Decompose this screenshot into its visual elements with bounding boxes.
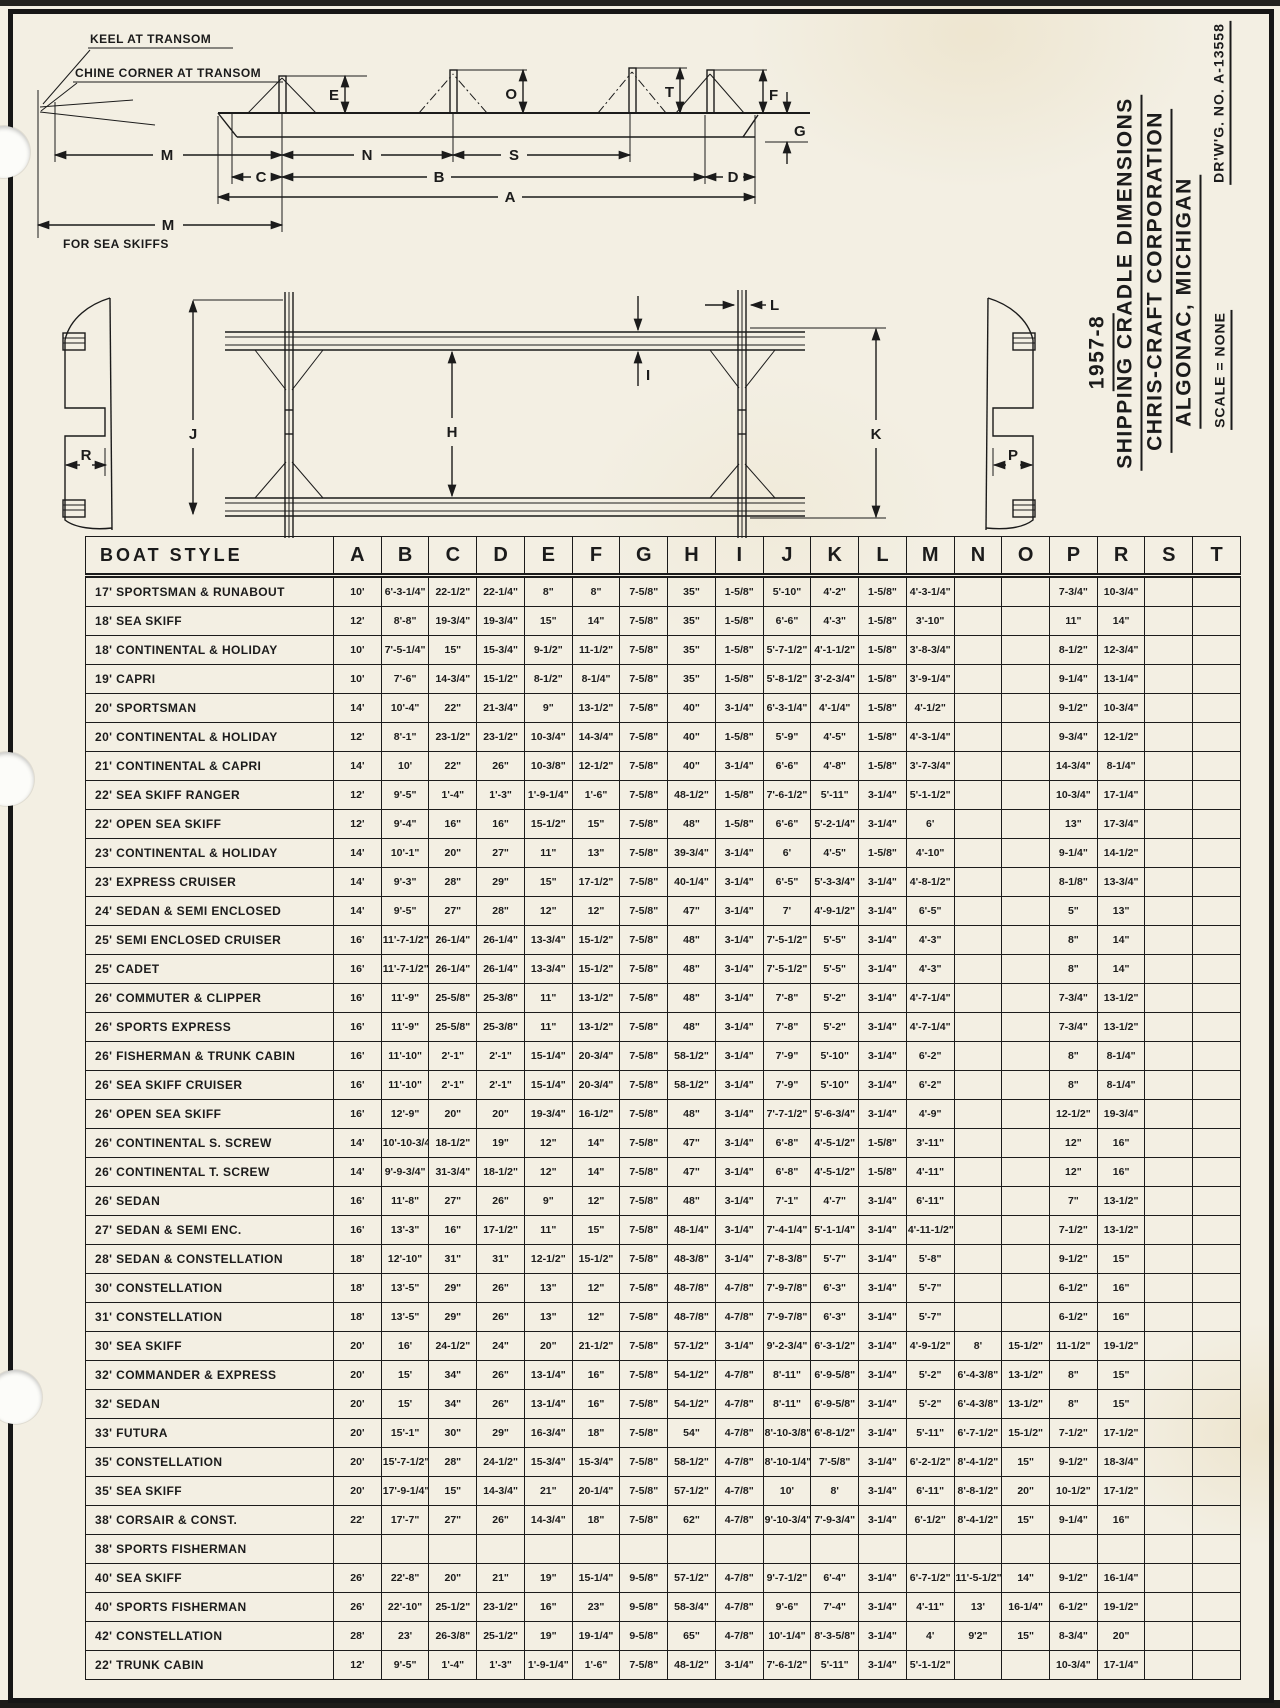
dimension-cell: 7-3/4" bbox=[1050, 576, 1098, 607]
dimension-cell: 5'-2-1/4" bbox=[811, 810, 859, 839]
dimension-cell: 6'-7-1/2" bbox=[954, 1419, 1002, 1448]
dimension-cell: 15-1/4" bbox=[572, 1564, 620, 1593]
dimension-cell: 10' bbox=[763, 1477, 811, 1506]
dimension-cell: 3-1/4" bbox=[715, 1013, 763, 1042]
dimension-cell bbox=[954, 665, 1002, 694]
dimension-cell: 3-1/4" bbox=[859, 1506, 907, 1535]
dimension-cell bbox=[1002, 1129, 1050, 1158]
table-row: 32' SEDAN20'15'34"26"13-1/4"16"7-5/8"54-… bbox=[86, 1390, 1241, 1419]
dimension-cell bbox=[1145, 1593, 1193, 1622]
dimension-cell bbox=[1193, 1216, 1241, 1245]
dimension-cell: 19" bbox=[524, 1622, 572, 1651]
boat-style-cell: 42' CONSTELLATION bbox=[86, 1622, 334, 1651]
dimension-cell: 5'-7" bbox=[811, 1245, 859, 1274]
dimension-cell: 23' bbox=[381, 1622, 429, 1651]
dimension-cell: 8" bbox=[1050, 955, 1098, 984]
dimension-cell: 8'-8-1/2" bbox=[954, 1477, 1002, 1506]
column-header-F: F bbox=[572, 537, 620, 576]
dimension-cell: 17-1/2" bbox=[1097, 1477, 1145, 1506]
dimension-cell: 3-1/4" bbox=[859, 1651, 907, 1680]
dimension-cell: 7-5/8" bbox=[620, 1100, 668, 1129]
dimension-cell: 31" bbox=[477, 1245, 525, 1274]
column-header-T: T bbox=[1193, 537, 1241, 576]
dimension-cell: 29" bbox=[429, 1274, 477, 1303]
dimension-cell: 9-1/2" bbox=[1050, 694, 1098, 723]
dimension-cell bbox=[1002, 1158, 1050, 1187]
dimension-cell: 7-5/8" bbox=[620, 1448, 668, 1477]
dimension-cell: 54" bbox=[668, 1419, 716, 1448]
boat-style-cell: 35' CONSTELLATION bbox=[86, 1448, 334, 1477]
dimension-cell: 9'-9-3/4" bbox=[381, 1158, 429, 1187]
dimension-cell: 48-3/8" bbox=[668, 1245, 716, 1274]
dimension-cell bbox=[1002, 1187, 1050, 1216]
dimension-cell: 13" bbox=[524, 1274, 572, 1303]
dimension-cell: 14" bbox=[1097, 607, 1145, 636]
dimension-cell: 10-3/8" bbox=[524, 752, 572, 781]
dimension-cell: 13' bbox=[954, 1593, 1002, 1622]
dimension-cell: 26-1/4" bbox=[429, 926, 477, 955]
cross-members bbox=[255, 290, 775, 538]
dim-label-I: I bbox=[646, 367, 650, 384]
dimension-cell bbox=[1002, 694, 1050, 723]
table-row: 31' CONSTELLATION18'13'-5"29"26"13"12"7-… bbox=[86, 1303, 1241, 1332]
dimension-cell: 3-1/4" bbox=[859, 1448, 907, 1477]
dimension-cell: 3-1/4" bbox=[715, 1216, 763, 1245]
dimension-cell: 14" bbox=[1002, 1564, 1050, 1593]
drawing-sheet: KEEL AT TRANSOM CHINE CORNER AT TRANSOM bbox=[0, 0, 1280, 1708]
dimension-cell: 16-1/2" bbox=[572, 1100, 620, 1129]
dimension-cell: 10'-1/4" bbox=[763, 1622, 811, 1651]
dimension-cell: 3-1/4" bbox=[859, 984, 907, 1013]
dimension-cell: 15-1/2" bbox=[1002, 1419, 1050, 1448]
dimension-cell: 3'-8-3/4" bbox=[906, 636, 954, 665]
boat-style-cell: 26' COMMUTER & CLIPPER bbox=[86, 984, 334, 1013]
dimension-cell: 15" bbox=[1097, 1361, 1145, 1390]
dimension-cell bbox=[954, 839, 1002, 868]
dimension-cell: 5'-3-3/4" bbox=[811, 868, 859, 897]
dimension-cell: 18' bbox=[334, 1274, 382, 1303]
dimension-cell: 57-1/2" bbox=[668, 1477, 716, 1506]
dimension-cell bbox=[1145, 1651, 1193, 1680]
dimension-cell bbox=[1145, 1158, 1193, 1187]
dimension-cell: 48" bbox=[668, 1100, 716, 1129]
dimension-cell: 20' bbox=[334, 1448, 382, 1477]
boat-style-cell: 33' FUTURA bbox=[86, 1419, 334, 1448]
dimension-cell: 3-1/4" bbox=[715, 868, 763, 897]
dimension-cell: 3-1/4" bbox=[859, 1564, 907, 1593]
dimension-cell: 13" bbox=[1097, 897, 1145, 926]
dimension-cell: 6'-6" bbox=[763, 752, 811, 781]
dimension-cell: 4-7/8" bbox=[715, 1390, 763, 1419]
dimension-cell: 6'-2-1/2" bbox=[906, 1448, 954, 1477]
dimension-cell bbox=[1193, 897, 1241, 926]
drawing-title: SHIPPING CRADLE DIMENSIONS bbox=[1114, 95, 1143, 471]
dimension-cell: 18-1/2" bbox=[429, 1129, 477, 1158]
dimension-cell: 7-5/8" bbox=[620, 984, 668, 1013]
dimension-cell bbox=[954, 694, 1002, 723]
dimension-cell: 15" bbox=[429, 636, 477, 665]
column-header-P: P bbox=[1050, 537, 1098, 576]
dimension-cell: 15-1/4" bbox=[524, 1071, 572, 1100]
dimension-cell: 6'-3-1/2" bbox=[811, 1332, 859, 1361]
dimension-cell: 4'-7" bbox=[811, 1187, 859, 1216]
dimension-cell: 13-1/4" bbox=[1097, 665, 1145, 694]
dimension-cell: 3-1/4" bbox=[859, 1042, 907, 1071]
dimension-cell: 5'-1-1/2" bbox=[906, 781, 954, 810]
dimension-cell: 29" bbox=[477, 868, 525, 897]
boat-style-cell: 18' SEA SKIFF bbox=[86, 607, 334, 636]
dimension-cell: 3-1/4" bbox=[715, 926, 763, 955]
dimension-cell: 16' bbox=[334, 926, 382, 955]
table-row: 25' SEMI ENCLOSED CRUISER16'11'-7-1/2"26… bbox=[86, 926, 1241, 955]
dimension-cell: 4-7/8" bbox=[715, 1506, 763, 1535]
dimension-cell bbox=[1193, 1100, 1241, 1129]
dimension-cell: 19-3/4" bbox=[1097, 1100, 1145, 1129]
boat-style-cell: 40' SEA SKIFF bbox=[86, 1564, 334, 1593]
column-header-R: R bbox=[1097, 537, 1145, 576]
dimension-cell: 48" bbox=[668, 1187, 716, 1216]
dimension-cell: 4-7/8" bbox=[715, 1448, 763, 1477]
table-row: 23' EXPRESS CRUISER14'9'-3"28"29"15"17-1… bbox=[86, 868, 1241, 897]
dimension-cell: 7-5/8" bbox=[620, 1158, 668, 1187]
dimension-cell: 29" bbox=[477, 1419, 525, 1448]
dimension-cell: 22" bbox=[429, 752, 477, 781]
dimension-cell: 14" bbox=[572, 607, 620, 636]
dimension-cell: 9'-5" bbox=[381, 781, 429, 810]
dimension-cell bbox=[1145, 694, 1193, 723]
dimension-cell bbox=[1193, 694, 1241, 723]
dimension-cell bbox=[1193, 1042, 1241, 1071]
boat-style-cell: 26' SEA SKIFF CRUISER bbox=[86, 1071, 334, 1100]
dimension-cell bbox=[1145, 839, 1193, 868]
dimension-cell: 4-7/8" bbox=[715, 1622, 763, 1651]
dimension-cell bbox=[1050, 1535, 1098, 1564]
dimension-cell: 4'-9" bbox=[906, 1100, 954, 1129]
table-row: 42' CONSTELLATION28'23'26-3/8"25-1/2"19"… bbox=[86, 1622, 1241, 1651]
dimension-cell bbox=[429, 1535, 477, 1564]
dimension-cell: 12-1/2" bbox=[572, 752, 620, 781]
dimension-cell: 1-5/8" bbox=[859, 839, 907, 868]
dimension-cell: 10-3/4" bbox=[1050, 1651, 1098, 1680]
dimension-cell: 7-5/8" bbox=[620, 636, 668, 665]
dimension-cell: 15" bbox=[429, 1477, 477, 1506]
dimension-cell bbox=[954, 607, 1002, 636]
dimension-cell bbox=[1145, 1100, 1193, 1129]
dimension-cell: 40" bbox=[668, 723, 716, 752]
note-keel-at-transom: KEEL AT TRANSOM bbox=[90, 32, 211, 46]
right-transom-profile: P bbox=[986, 298, 1035, 530]
dimension-cell bbox=[1145, 665, 1193, 694]
dimension-cell: 4'-3" bbox=[906, 955, 954, 984]
dimension-cell: 12" bbox=[572, 1274, 620, 1303]
dimension-cell: 20-3/4" bbox=[572, 1071, 620, 1100]
dimension-cell: 6'-8-1/2" bbox=[811, 1419, 859, 1448]
dimension-cell: 1'-3" bbox=[477, 1651, 525, 1680]
dimension-cell: 3-1/4" bbox=[715, 1042, 763, 1071]
dimension-cell: 22-1/4" bbox=[477, 576, 525, 607]
table-row: 26' OPEN SEA SKIFF16'12'-9"20"20"19-3/4"… bbox=[86, 1100, 1241, 1129]
dimension-cell bbox=[954, 752, 1002, 781]
dimension-cell: 1'-3" bbox=[477, 781, 525, 810]
dimension-cell: 1-5/8" bbox=[859, 723, 907, 752]
dimension-cell: 7'-8" bbox=[763, 984, 811, 1013]
dimension-cell: 5'-10" bbox=[811, 1071, 859, 1100]
dimension-cell: 15" bbox=[1002, 1448, 1050, 1477]
dimension-cell: 13-3/4" bbox=[524, 955, 572, 984]
dimension-cell: 9-5/8" bbox=[620, 1564, 668, 1593]
dimension-cell: 3-1/4" bbox=[859, 1593, 907, 1622]
dimension-cell: 3-1/4" bbox=[859, 1013, 907, 1042]
dimension-cell: 1-5/8" bbox=[859, 576, 907, 607]
dimension-cell: 10' bbox=[334, 636, 382, 665]
dimension-cell: 7-5/8" bbox=[620, 723, 668, 752]
dimension-cell: 14" bbox=[572, 1158, 620, 1187]
column-header-boat-style: BOAT STYLE bbox=[86, 537, 334, 576]
dimension-cell: 3'-10" bbox=[906, 607, 954, 636]
dimension-cell: 7-5/8" bbox=[620, 1129, 668, 1158]
dimension-cell: 65" bbox=[668, 1622, 716, 1651]
dim-label-J: J bbox=[189, 426, 197, 443]
dimension-cell: 7-5/8" bbox=[620, 810, 668, 839]
dimension-cell: 1-5/8" bbox=[715, 665, 763, 694]
dimension-cell: 48" bbox=[668, 926, 716, 955]
table-row: 38' SPORTS FISHERMAN bbox=[86, 1535, 1241, 1564]
dimension-cell: 4-7/8" bbox=[715, 1564, 763, 1593]
dimension-cell: 5'-8" bbox=[906, 1245, 954, 1274]
dimension-cell: 6'-5" bbox=[763, 868, 811, 897]
dimension-cell bbox=[1002, 636, 1050, 665]
dimension-cell: 8'-11" bbox=[763, 1390, 811, 1419]
dimension-cell: 13-1/2" bbox=[1002, 1361, 1050, 1390]
dimension-cell bbox=[954, 1042, 1002, 1071]
dimension-cell: 48" bbox=[668, 1013, 716, 1042]
column-header-B: B bbox=[381, 537, 429, 576]
dimension-cell: 8-1/2" bbox=[1050, 636, 1098, 665]
dimension-cell: 9'-5" bbox=[381, 1651, 429, 1680]
dimension-cell: 5'-11" bbox=[811, 1651, 859, 1680]
dimension-cell: 26-3/8" bbox=[429, 1622, 477, 1651]
boat-style-cell: 18' CONTINENTAL & HOLIDAY bbox=[86, 636, 334, 665]
dimension-cell: 6'-8" bbox=[763, 1158, 811, 1187]
dimension-cell bbox=[954, 723, 1002, 752]
dimension-cell: 24-1/2" bbox=[429, 1332, 477, 1361]
boat-style-cell: 26' CONTINENTAL S. SCREW bbox=[86, 1129, 334, 1158]
dimension-cell: 19-1/2" bbox=[1097, 1332, 1145, 1361]
dimension-cell bbox=[1002, 607, 1050, 636]
dimension-cell: 12" bbox=[524, 1158, 572, 1187]
title-year: 1957-8 bbox=[1086, 313, 1115, 391]
dimension-cell: 8'-11" bbox=[763, 1361, 811, 1390]
dimension-cell bbox=[1145, 752, 1193, 781]
boat-style-cell: 26' OPEN SEA SKIFF bbox=[86, 1100, 334, 1129]
dimension-cell: 10' bbox=[334, 665, 382, 694]
dimension-cell: 12" bbox=[1050, 1129, 1098, 1158]
dimension-cell: 2'-1" bbox=[429, 1042, 477, 1071]
dim-label-C: C bbox=[256, 169, 267, 186]
table-row: 26' SEDAN16'11'-8"27"26"9"12"7-5/8"48"3-… bbox=[86, 1187, 1241, 1216]
table-row: 23' CONTINENTAL & HOLIDAY14'10'-1"20"27"… bbox=[86, 839, 1241, 868]
dimension-cell bbox=[1193, 839, 1241, 868]
dimension-cell: 3-1/4" bbox=[715, 1187, 763, 1216]
dimension-cell: 28" bbox=[477, 897, 525, 926]
dimension-cell: 13" bbox=[572, 839, 620, 868]
dimension-cell bbox=[1193, 1129, 1241, 1158]
table-row: 24' SEDAN & SEMI ENCLOSED14'9'-5"27"28"1… bbox=[86, 897, 1241, 926]
dimension-cell: 7-5/8" bbox=[620, 1332, 668, 1361]
dimension-cell: 3-1/4" bbox=[715, 1651, 763, 1680]
dimension-cell: 12" bbox=[1050, 1158, 1098, 1187]
dimension-cell: 3'-2-3/4" bbox=[811, 665, 859, 694]
table-row: 18' SEA SKIFF12'8'-8"19-3/4"19-3/4"15"14… bbox=[86, 607, 1241, 636]
dimension-cell: 26' bbox=[334, 1564, 382, 1593]
dimension-cell: 22'-8" bbox=[381, 1564, 429, 1593]
dimension-cell: 3-1/4" bbox=[859, 1100, 907, 1129]
dimension-cell: 5'-5" bbox=[811, 926, 859, 955]
dimension-cell: 47" bbox=[668, 897, 716, 926]
dimension-cell bbox=[1002, 984, 1050, 1013]
dimension-cell: 16" bbox=[572, 1390, 620, 1419]
dimension-cell: 13" bbox=[1050, 810, 1098, 839]
dimension-cell: 5" bbox=[1050, 897, 1098, 926]
dim-label-S: S bbox=[509, 147, 519, 164]
dimension-cell: 13-1/2" bbox=[1097, 1216, 1145, 1245]
dimension-cell: 7-5/8" bbox=[620, 607, 668, 636]
dimension-cell bbox=[1193, 1419, 1241, 1448]
dimension-cell: 5'-8-1/2" bbox=[763, 665, 811, 694]
boat-style-cell: 25' SEMI ENCLOSED CRUISER bbox=[86, 926, 334, 955]
column-header-L: L bbox=[859, 537, 907, 576]
dimension-cell: 6'-3" bbox=[811, 1303, 859, 1332]
boat-style-cell: 21' CONTINENTAL & CAPRI bbox=[86, 752, 334, 781]
dimension-cell: 7'-4-1/4" bbox=[763, 1216, 811, 1245]
dimension-cell: 26' bbox=[334, 1593, 382, 1622]
dimension-cell: 30" bbox=[429, 1419, 477, 1448]
dimension-cell: 3-1/4" bbox=[715, 1158, 763, 1187]
dimension-cell: 7'-7-1/2" bbox=[763, 1100, 811, 1129]
dimension-cell: 1'-9-1/4" bbox=[524, 781, 572, 810]
dimension-cell: 8'-3-5/8" bbox=[811, 1622, 859, 1651]
dimension-cell: 6'-3-1/4" bbox=[763, 694, 811, 723]
boat-style-cell: 23' EXPRESS CRUISER bbox=[86, 868, 334, 897]
dimension-cell bbox=[1145, 781, 1193, 810]
dimension-cell: 13-1/4" bbox=[524, 1361, 572, 1390]
dimension-cell: 9'-6" bbox=[763, 1593, 811, 1622]
dimension-cell: 3-1/4" bbox=[859, 868, 907, 897]
dimension-cell bbox=[1145, 1477, 1193, 1506]
dimension-cell: 24" bbox=[477, 1332, 525, 1361]
dimension-cell: 22'-10" bbox=[381, 1593, 429, 1622]
dimension-cell: 13-1/4" bbox=[524, 1390, 572, 1419]
boat-style-cell: 30' CONSTELLATION bbox=[86, 1274, 334, 1303]
dimension-cell: 7-5/8" bbox=[620, 665, 668, 694]
dimension-cell: 6'-4-3/8" bbox=[954, 1361, 1002, 1390]
dimension-cell: 4'-1-1/2" bbox=[811, 636, 859, 665]
dimension-cell: 22' bbox=[334, 1506, 382, 1535]
dimension-cell: 6'-11" bbox=[906, 1477, 954, 1506]
dimension-cell bbox=[1145, 810, 1193, 839]
dimension-cell: 6-1/2" bbox=[1050, 1303, 1098, 1332]
dimension-cell: 7'-6" bbox=[381, 665, 429, 694]
dimension-cell: 8" bbox=[1050, 1361, 1098, 1390]
dimension-cell bbox=[1193, 1245, 1241, 1274]
dimension-cell: 13-1/2" bbox=[572, 984, 620, 1013]
dimension-cell bbox=[1145, 926, 1193, 955]
dimension-cell: 14-3/4" bbox=[572, 723, 620, 752]
dimension-cell bbox=[1145, 1042, 1193, 1071]
dimension-cell: 5'-10" bbox=[763, 576, 811, 607]
scale-note: SCALE = NONE bbox=[1212, 310, 1233, 430]
dimension-cell: 18" bbox=[572, 1419, 620, 1448]
dimension-cell: 54-1/2" bbox=[668, 1390, 716, 1419]
dimension-cell: 15-1/4" bbox=[524, 1042, 572, 1071]
dimension-cell: 25-1/2" bbox=[429, 1593, 477, 1622]
dimension-cell bbox=[1145, 723, 1193, 752]
dimension-cell bbox=[1193, 752, 1241, 781]
dimension-cell: 6'-1/2" bbox=[906, 1506, 954, 1535]
dimension-cell: 5'-6-3/4" bbox=[811, 1100, 859, 1129]
dimension-cell bbox=[1097, 1535, 1145, 1564]
dimension-cell: 2'-1" bbox=[477, 1071, 525, 1100]
dimension-cell bbox=[1193, 576, 1241, 607]
dimension-cell: 16" bbox=[572, 1361, 620, 1390]
dimension-cell: 17-1/2" bbox=[572, 868, 620, 897]
dimension-cell: 11'-10" bbox=[381, 1042, 429, 1071]
dimension-cell: 48-1/2" bbox=[668, 1651, 716, 1680]
dimension-cell: 10-3/4" bbox=[524, 723, 572, 752]
dimension-cell: 4'-11" bbox=[906, 1158, 954, 1187]
dimension-cell: 11" bbox=[524, 1216, 572, 1245]
dimension-cell bbox=[1193, 1158, 1241, 1187]
column-header-A: A bbox=[334, 537, 382, 576]
dimension-cell: 7-5/8" bbox=[620, 576, 668, 607]
dimension-cell: 9" bbox=[524, 694, 572, 723]
dimension-cell bbox=[1002, 752, 1050, 781]
dimension-cell: 21-3/4" bbox=[477, 694, 525, 723]
dimension-cell: 5'-1-1/2" bbox=[906, 1651, 954, 1680]
dimension-cell bbox=[954, 1274, 1002, 1303]
dimension-cell: 7-5/8" bbox=[620, 752, 668, 781]
dimension-cell: 1-5/8" bbox=[859, 1158, 907, 1187]
table-row: 38' CORSAIR & CONST.22'17'-7"27"26"14-3/… bbox=[86, 1506, 1241, 1535]
dimension-cell: 48-1/2" bbox=[668, 781, 716, 810]
column-header-M: M bbox=[906, 537, 954, 576]
dimension-cell bbox=[1193, 926, 1241, 955]
dim-label-P: P bbox=[1008, 447, 1018, 464]
dim-label-A: A bbox=[505, 189, 516, 206]
dimension-cell bbox=[811, 1535, 859, 1564]
dimension-cell: 20" bbox=[429, 1100, 477, 1129]
dimension-cell: 16" bbox=[524, 1593, 572, 1622]
dimension-cell: 3-1/4" bbox=[859, 1071, 907, 1100]
dimension-cell: 3-1/4" bbox=[715, 1245, 763, 1274]
dimension-cell: 4'-11" bbox=[906, 1593, 954, 1622]
dimension-cell bbox=[859, 1535, 907, 1564]
dimension-cell: 11" bbox=[524, 839, 572, 868]
dimension-cell: 27" bbox=[429, 897, 477, 926]
dimension-cell: 2'-1" bbox=[477, 1042, 525, 1071]
dimension-cell: 3-1/4" bbox=[859, 1477, 907, 1506]
dimension-cell bbox=[1145, 1245, 1193, 1274]
dimension-cell: 7'-9-7/8" bbox=[763, 1274, 811, 1303]
boat-style-cell: 22' TRUNK CABIN bbox=[86, 1651, 334, 1680]
dimension-cell: 6'-11" bbox=[906, 1187, 954, 1216]
dimension-cell: 4-7/8" bbox=[715, 1361, 763, 1390]
dimension-cell: 12" bbox=[524, 897, 572, 926]
table-row: 28' SEDAN & CONSTELLATION18'12'-10"31"31… bbox=[86, 1245, 1241, 1274]
table-row: 26' CONTINENTAL T. SCREW14'9'-9-3/4"31-3… bbox=[86, 1158, 1241, 1187]
dimension-cell: 4'-5" bbox=[811, 723, 859, 752]
dimension-cell: 9-5/8" bbox=[620, 1593, 668, 1622]
